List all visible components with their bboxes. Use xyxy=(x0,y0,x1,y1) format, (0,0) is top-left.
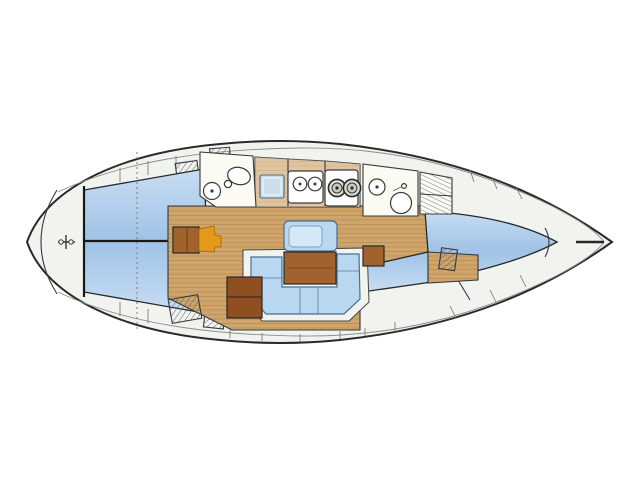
galley: Galley - icebox, twin sinks, two-burner … xyxy=(255,157,361,207)
stove xyxy=(325,170,361,206)
toilet-icon xyxy=(391,193,412,214)
side-unit xyxy=(363,246,384,266)
galley-sinks xyxy=(288,171,323,203)
aft-head: Aft head - toilet and washbasin xyxy=(200,152,256,207)
forward-cabin-step xyxy=(439,248,458,271)
lockers: Lockers / shelving xyxy=(420,172,452,214)
boat-floor-plan: Sailing yacht interior layout plan (top … xyxy=(0,0,640,480)
nav-desk xyxy=(173,227,199,253)
companionway-steps xyxy=(168,295,202,324)
forward-head: Forward head - washbasin and toilet xyxy=(363,164,418,216)
floor-plan-image: Sailing yacht interior layout plan (top … xyxy=(0,0,640,480)
